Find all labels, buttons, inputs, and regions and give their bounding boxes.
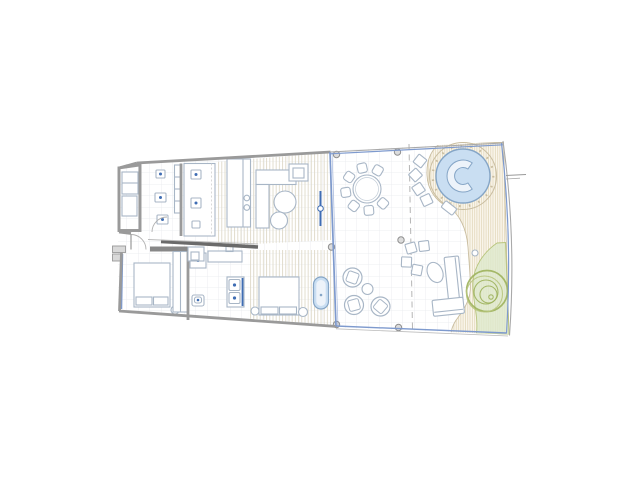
stepping-stone-icon <box>405 242 417 254</box>
dining-table <box>353 175 381 203</box>
low-cabinet <box>208 251 242 262</box>
column-icon <box>398 237 404 243</box>
lounge-chair-icon <box>371 297 390 316</box>
pool-water <box>436 149 490 203</box>
kitchen-island <box>227 159 251 227</box>
entry-step <box>113 246 126 253</box>
dining-chair-icon <box>356 162 367 173</box>
garden-pot <box>472 250 478 256</box>
round-side-table <box>271 212 288 229</box>
floor-plan-image <box>0 0 640 480</box>
desk <box>188 247 204 261</box>
column-icon <box>395 324 401 330</box>
dimension-tick <box>506 175 526 180</box>
sofa-chaise <box>256 185 269 229</box>
bedside-table <box>251 307 259 315</box>
outdoor-sofa-bottom <box>432 297 465 316</box>
lounge-chair-icon <box>345 296 364 315</box>
lounge-chair-icon <box>343 268 362 287</box>
closet-header <box>150 247 188 252</box>
stepping-stone-icon <box>411 264 423 276</box>
bedside-table <box>299 308 308 317</box>
island-sink-icon <box>244 195 250 201</box>
stepping-stone-icon <box>418 240 429 251</box>
bathtub <box>314 277 329 309</box>
storage-cabinet <box>122 196 137 216</box>
stepping-stone-icon <box>401 257 411 267</box>
floor-plan-drawing <box>0 0 640 480</box>
round-coffee-table <box>274 191 296 213</box>
dining-chair-icon <box>364 205 374 215</box>
lounge-side-table <box>362 284 373 295</box>
dining-chair-icon <box>340 187 351 198</box>
